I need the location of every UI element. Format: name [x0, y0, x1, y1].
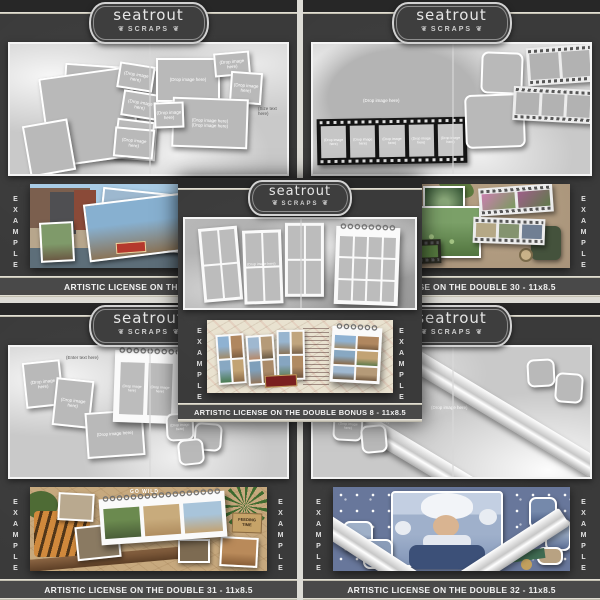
drop-label: (Drop image here) — [232, 82, 261, 95]
photo-placeholder: (Drop image here) — [119, 362, 145, 415]
film-frame: (Drop image here) — [408, 124, 434, 156]
grid-cell — [222, 264, 240, 298]
drop-label: (Drop image here) — [335, 421, 361, 431]
film-frame — [499, 224, 519, 239]
brand-sub: ❦ SCRAPS ❦ — [394, 25, 510, 33]
brand-badge: seatrout ❦ SCRAPS ❦ — [248, 180, 352, 216]
drop-label: (Drop image here) — [120, 384, 144, 393]
flip-calendar-photos — [330, 326, 383, 385]
grid-cell — [305, 226, 321, 259]
page-fold — [149, 347, 151, 477]
travel-photo — [230, 335, 243, 358]
template-preview: (Drop image here) — [183, 217, 417, 310]
flourish-icon: ❦ — [322, 200, 328, 207]
size-text-label: (Size text here) — [258, 106, 288, 116]
film-frame: (Drop image here) — [438, 124, 464, 156]
drop-label: (Drop image here) — [438, 136, 463, 145]
example-watermark: EXAMPLE — [398, 328, 405, 405]
flip-calendar — [334, 226, 401, 306]
brochure-panel — [276, 330, 305, 380]
flip-calendar — [99, 491, 228, 546]
trifold-brochure: (Drop image here) — [199, 222, 326, 302]
grid-cell — [339, 236, 352, 256]
page-fold — [149, 44, 151, 174]
brand-sub-text: SCRAPS — [128, 26, 169, 33]
drop-label: (Drop image here) — [247, 262, 276, 267]
example-watermark: EXAMPLE — [12, 499, 19, 576]
example-watermark: EXAMPLE — [12, 196, 19, 273]
travel-photo — [279, 332, 290, 354]
filmstrip-white — [512, 86, 592, 124]
travel-photo — [261, 336, 274, 359]
travel-photo — [292, 332, 303, 354]
drop-label: (Drop image here) — [116, 136, 153, 150]
brochure-panel — [285, 223, 324, 297]
film-frame — [541, 93, 565, 116]
page-fold — [452, 347, 454, 477]
flourish-icon: ❦ — [118, 329, 124, 336]
grid-cell — [353, 259, 366, 279]
grid-cell — [354, 237, 367, 257]
drop-label: (Drop image here) — [97, 430, 134, 438]
brand-name: seatrout — [394, 8, 510, 23]
filmstrip-white — [526, 44, 592, 87]
flourish-icon: ❦ — [118, 26, 124, 33]
grid-cell — [368, 259, 381, 279]
grid-cell — [204, 265, 222, 299]
page-fold — [452, 44, 454, 174]
grid-cell — [338, 280, 351, 300]
example-photo — [57, 492, 94, 522]
template-preview: (Drop image here) (Drop image here) (Dro… — [311, 42, 592, 176]
grid-cell — [219, 229, 237, 263]
grid-cell — [246, 268, 263, 302]
film-frame — [529, 52, 559, 80]
travel-photo — [232, 359, 245, 382]
enter-text-label: (Enter text here) — [66, 355, 99, 360]
grid-cell — [305, 261, 321, 294]
grid-cell — [382, 260, 395, 280]
drop-label: (Drop image here) — [192, 122, 229, 129]
drop-label: (Drop image here) — [321, 138, 346, 147]
brand-sub-text: SCRAPS — [431, 26, 472, 33]
film-frame — [517, 190, 551, 208]
calendar-photo — [103, 507, 141, 539]
drop-label: (Drop image here) — [123, 97, 156, 113]
drop-label: (Drop image here) — [216, 57, 249, 71]
caption-bar: ARTISTIC LICENSE ON THE DOUBLE BONUS 8 -… — [178, 405, 422, 419]
flourish-icon: ❦ — [476, 329, 482, 336]
grid-cell — [201, 230, 219, 264]
caption-bar: ARTISTIC LICENSE ON THE DOUBLE 32 - 11x8… — [303, 581, 600, 598]
brand-badge: seatrout ❦ SCRAPS ❦ — [89, 2, 209, 44]
travel-photo — [356, 351, 378, 365]
grid-cell — [368, 237, 381, 257]
photo-placeholder: (Drop image here) — [156, 58, 220, 102]
brochure-panel — [198, 226, 243, 303]
page-fold — [300, 219, 302, 308]
calendar-grid — [338, 236, 396, 302]
film-frame — [522, 224, 542, 239]
travel-photo — [334, 335, 356, 349]
example-artwork-winter — [333, 487, 570, 571]
caption-text: ARTISTIC LICENSE ON THE DOUBLE BONUS 8 -… — [194, 408, 406, 417]
photo-placeholder: (Drop image here) — [154, 101, 185, 128]
travel-photo — [248, 337, 261, 360]
divider-line — [178, 419, 422, 422]
film-frame: (Drop image here) — [321, 126, 347, 158]
grid-cell — [383, 238, 396, 258]
spiral-binding — [340, 222, 396, 232]
drop-label: (Drop image here) — [409, 136, 434, 145]
travel-photo — [219, 360, 232, 383]
caption-text: ARTISTIC LICENSE ON THE DOUBLE 32 - 11x8… — [347, 585, 556, 595]
calendar-photo — [183, 501, 223, 534]
spiral-binding — [336, 322, 378, 332]
grid-cell — [367, 281, 380, 301]
product-collage: { "brand": {"name": "seatrout", "sub": "… — [0, 0, 600, 600]
panel-center: seatrout ❦ SCRAPS ❦ (Drop image here) — [178, 178, 422, 422]
drop-label: (Drop image here) — [156, 109, 182, 121]
grid-cell — [339, 258, 352, 278]
example-watermark: EXAMPLE — [580, 196, 587, 273]
example-photo — [178, 539, 210, 563]
grid-cell — [381, 282, 394, 302]
drop-label: (Drop image here) — [431, 405, 468, 410]
travel-photo — [356, 367, 378, 381]
compass-decoration — [519, 248, 533, 262]
film-frame: (Drop image here) — [379, 125, 405, 157]
photo-placeholder — [526, 358, 555, 387]
feeding-time-sign: FEEDING TIME — [232, 512, 263, 533]
travel-photo — [217, 336, 230, 359]
travel-photo — [249, 361, 262, 384]
example-watermark: EXAMPLE — [315, 499, 322, 576]
travel-photo — [334, 350, 356, 364]
brand-name: seatrout — [91, 8, 207, 23]
sign-text: FEEDING TIME — [233, 518, 261, 529]
handwriting-decoration — [303, 328, 329, 386]
photo-placeholder: (Drop image here) — [147, 363, 173, 416]
film-frame — [515, 92, 539, 115]
calendar-grid — [333, 335, 379, 381]
drop-label: (Drop image here) — [363, 98, 400, 103]
flourish-icon: ❦ — [173, 26, 179, 33]
flourish-icon: ❦ — [476, 26, 482, 33]
brand-sub: ❦ SCRAPS ❦ — [250, 199, 350, 207]
gold-ornament — [521, 559, 532, 570]
photo-placeholder — [360, 424, 388, 454]
film-frame: (Drop image here) — [350, 125, 376, 157]
drop-label: (Drop image here) — [350, 137, 375, 146]
drop-label: (Drop image here) — [148, 385, 172, 394]
filmstrip-flowers — [478, 184, 554, 217]
flourish-icon: ❦ — [421, 26, 427, 33]
brochure-panel: (Drop image here) — [242, 229, 284, 304]
brand-sub-text: SCRAPS — [128, 329, 169, 336]
calendar-photo — [143, 504, 181, 536]
filmstrip-black: (Drop image here) (Drop image here) (Dro… — [317, 117, 468, 166]
film-frame — [561, 50, 591, 78]
example-watermark: EXAMPLE — [277, 499, 284, 576]
brochure-panel — [215, 333, 246, 385]
brand-badge: seatrout ❦ SCRAPS ❦ — [392, 2, 512, 44]
brand-sub-text: SCRAPS — [431, 329, 472, 336]
brand-sub-text: SCRAPS — [281, 201, 318, 207]
example-photo — [39, 221, 75, 263]
travel-photo — [357, 336, 379, 350]
mitten — [479, 509, 497, 525]
film-frame — [476, 223, 496, 238]
brand-sub: ❦ SCRAPS ❦ — [91, 25, 207, 33]
photo-placeholder — [554, 372, 584, 404]
drop-label: (Drop image here) — [168, 422, 192, 432]
grid-cell — [264, 267, 281, 301]
template-preview: (Drop image here) (Drop image here) (Dro… — [8, 42, 289, 176]
example-artwork-zoo: GO WILD FEEDING TIME — [30, 487, 267, 571]
mitten — [395, 521, 411, 535]
example-artwork-travel — [207, 320, 393, 393]
photo-placeholder — [22, 118, 76, 176]
brand-name: seatrout — [250, 185, 350, 198]
example-photo — [219, 536, 259, 568]
caption-text: ARTISTIC LICENSE ON THE DOUBLE 31 - 11x8… — [44, 585, 253, 595]
flourish-icon: ❦ — [272, 200, 278, 207]
caption-bar: ARTISTIC LICENSE ON THE DOUBLE 31 - 11x8… — [0, 581, 297, 598]
example-watermark: EXAMPLE — [196, 328, 203, 405]
film-frame — [567, 95, 591, 118]
child-face — [433, 515, 459, 537]
film-frame — [482, 192, 516, 210]
filmstrip-garden — [473, 217, 546, 245]
example-watermark: EXAMPLE — [580, 499, 587, 576]
go-wild-sign: GO WILD — [130, 489, 159, 495]
grid-cell — [352, 281, 365, 301]
spiral-binding — [102, 487, 220, 503]
drop-label: (Drop image here) — [56, 396, 91, 410]
drop-label: (Drop image here) — [379, 137, 404, 146]
red-plaque — [265, 374, 298, 388]
red-tag — [116, 241, 147, 254]
travel-photo — [333, 365, 355, 379]
photo-placeholder — [177, 438, 206, 467]
drop-label: (Drop image here) — [170, 77, 207, 82]
